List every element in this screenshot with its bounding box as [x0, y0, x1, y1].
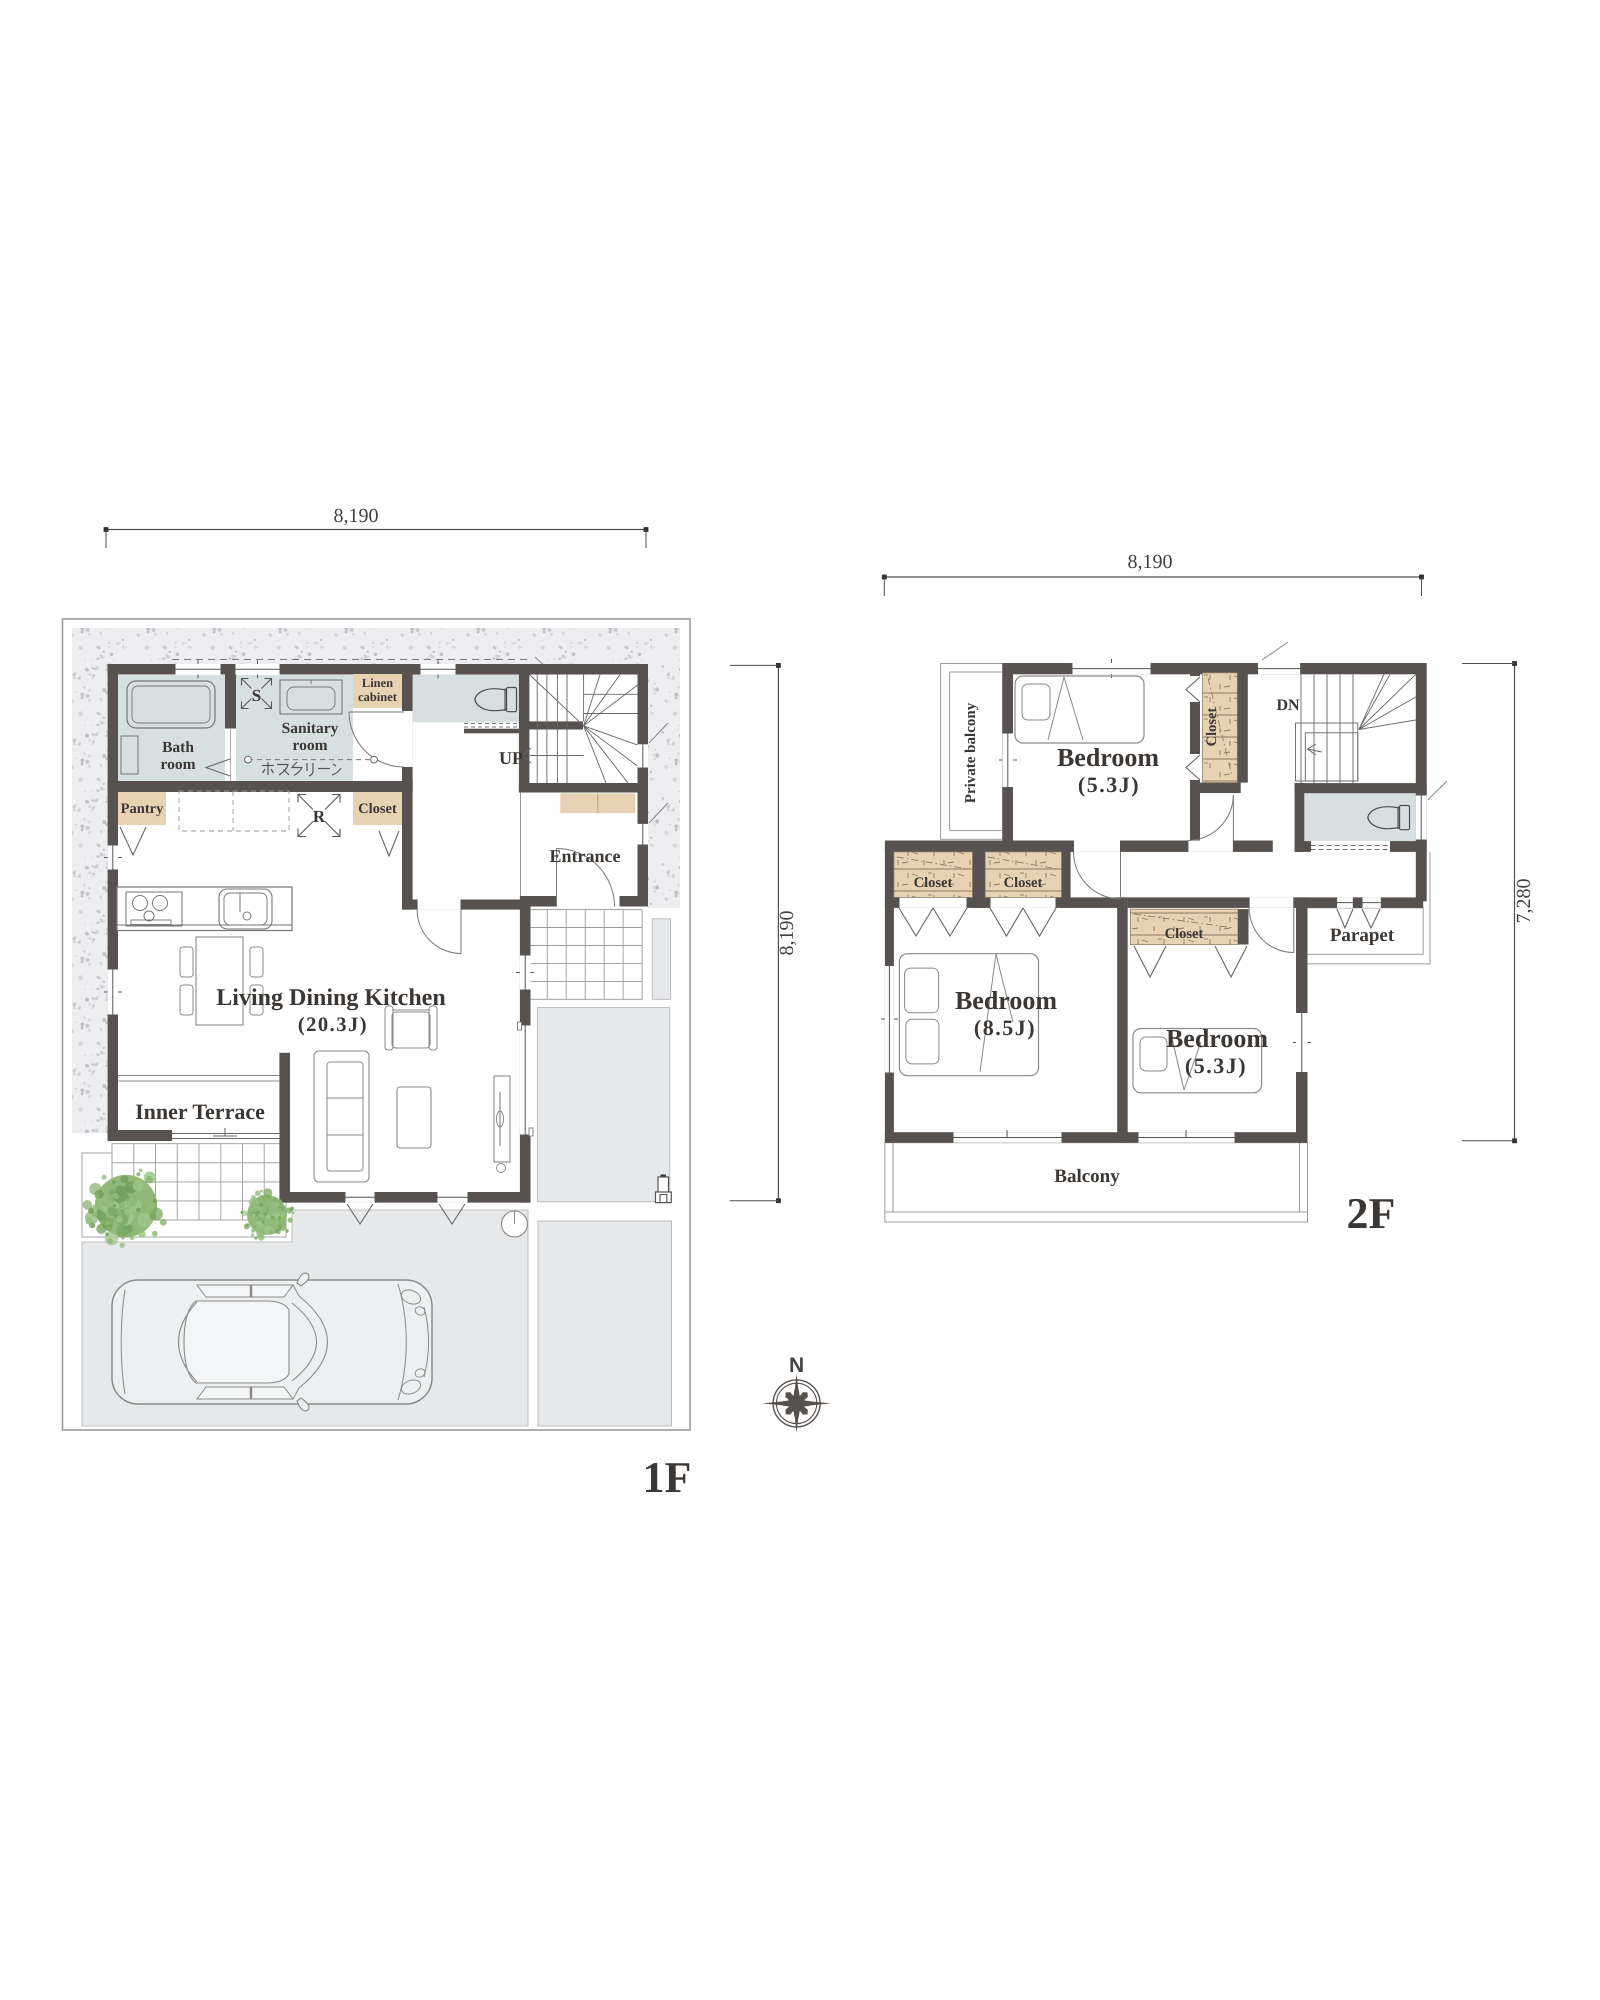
svg-text:Pantry: Pantry: [121, 801, 164, 817]
svg-text:Private balcony: Private balcony: [963, 702, 979, 803]
svg-text:R: R: [313, 807, 326, 826]
svg-text:1F: 1F: [643, 1453, 692, 1502]
svg-text:S: S: [252, 686, 261, 705]
svg-text:2F: 2F: [1347, 1189, 1396, 1238]
svg-text:8,190: 8,190: [334, 505, 379, 527]
svg-text:(20.3J): (20.3J): [298, 1014, 368, 1036]
svg-text:Entrance: Entrance: [550, 846, 621, 866]
svg-text:Bedroom: Bedroom: [955, 986, 1057, 1015]
svg-text:Balcony: Balcony: [1054, 1166, 1120, 1187]
svg-text:Closet: Closet: [1204, 708, 1220, 747]
svg-text:Sanitary: Sanitary: [282, 720, 339, 737]
svg-text:DN: DN: [1276, 697, 1300, 714]
svg-text:(5.3J): (5.3J): [1185, 1053, 1247, 1078]
svg-text:Closet: Closet: [358, 801, 397, 817]
svg-text:Closet: Closet: [914, 875, 953, 891]
svg-text:room: room: [292, 737, 327, 754]
svg-text:Bedroom: Bedroom: [1057, 743, 1159, 772]
svg-text:(5.3J): (5.3J): [1078, 772, 1140, 797]
svg-text:Closet: Closet: [1004, 875, 1043, 891]
svg-text:(8.5J): (8.5J): [974, 1015, 1036, 1040]
svg-text:cabinet: cabinet: [358, 690, 398, 704]
svg-text:Inner Terrace: Inner Terrace: [135, 1099, 265, 1124]
svg-text:room: room: [160, 756, 195, 773]
svg-text:Bedroom: Bedroom: [1166, 1024, 1268, 1053]
svg-text:Linen: Linen: [362, 676, 393, 690]
svg-text:8,190: 8,190: [776, 911, 798, 956]
svg-text:Parapet: Parapet: [1330, 925, 1395, 946]
svg-text:Closet: Closet: [1165, 926, 1204, 942]
svg-text:N: N: [789, 1354, 804, 1377]
svg-text:7,280: 7,280: [1513, 879, 1535, 924]
svg-text:Living Dining Kitchen: Living Dining Kitchen: [216, 985, 445, 1011]
svg-text:UP: UP: [499, 748, 523, 768]
svg-text:Bath: Bath: [162, 739, 194, 756]
svg-text:8,190: 8,190: [1128, 551, 1173, 573]
